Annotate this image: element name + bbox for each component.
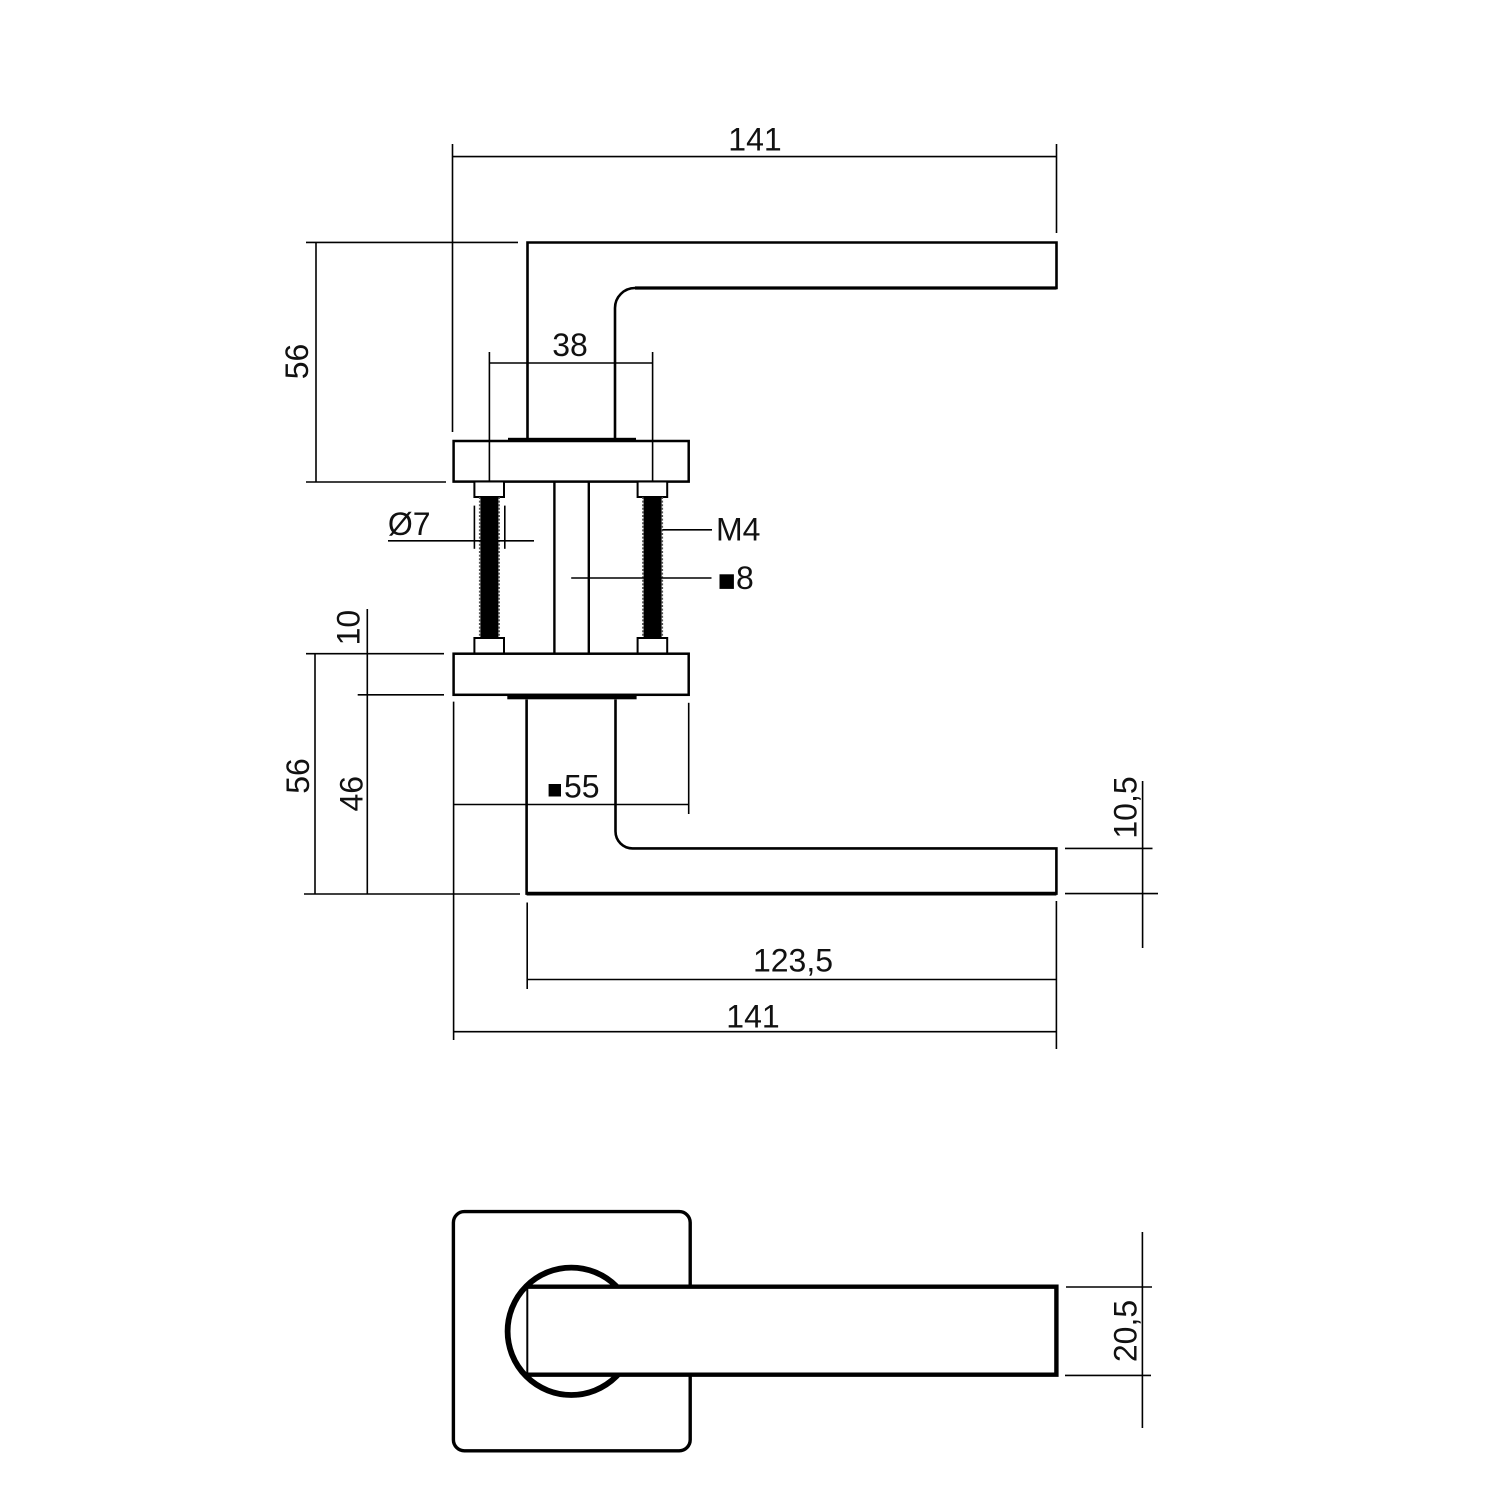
svg-text:38: 38	[552, 327, 588, 363]
svg-text:141: 141	[726, 999, 779, 1035]
svg-text:10,5: 10,5	[1108, 776, 1144, 838]
svg-text:8: 8	[736, 560, 754, 596]
svg-text:123,5: 123,5	[753, 943, 833, 979]
svg-text:141: 141	[728, 122, 781, 158]
svg-text:55: 55	[564, 769, 600, 805]
svg-text:46: 46	[334, 776, 370, 812]
svg-text:56: 56	[279, 344, 315, 380]
svg-text:20,5: 20,5	[1108, 1300, 1144, 1362]
svg-text:M4: M4	[716, 512, 760, 548]
svg-text:56: 56	[280, 758, 316, 794]
svg-text:10: 10	[331, 610, 367, 646]
svg-text:Ø7: Ø7	[388, 506, 431, 542]
